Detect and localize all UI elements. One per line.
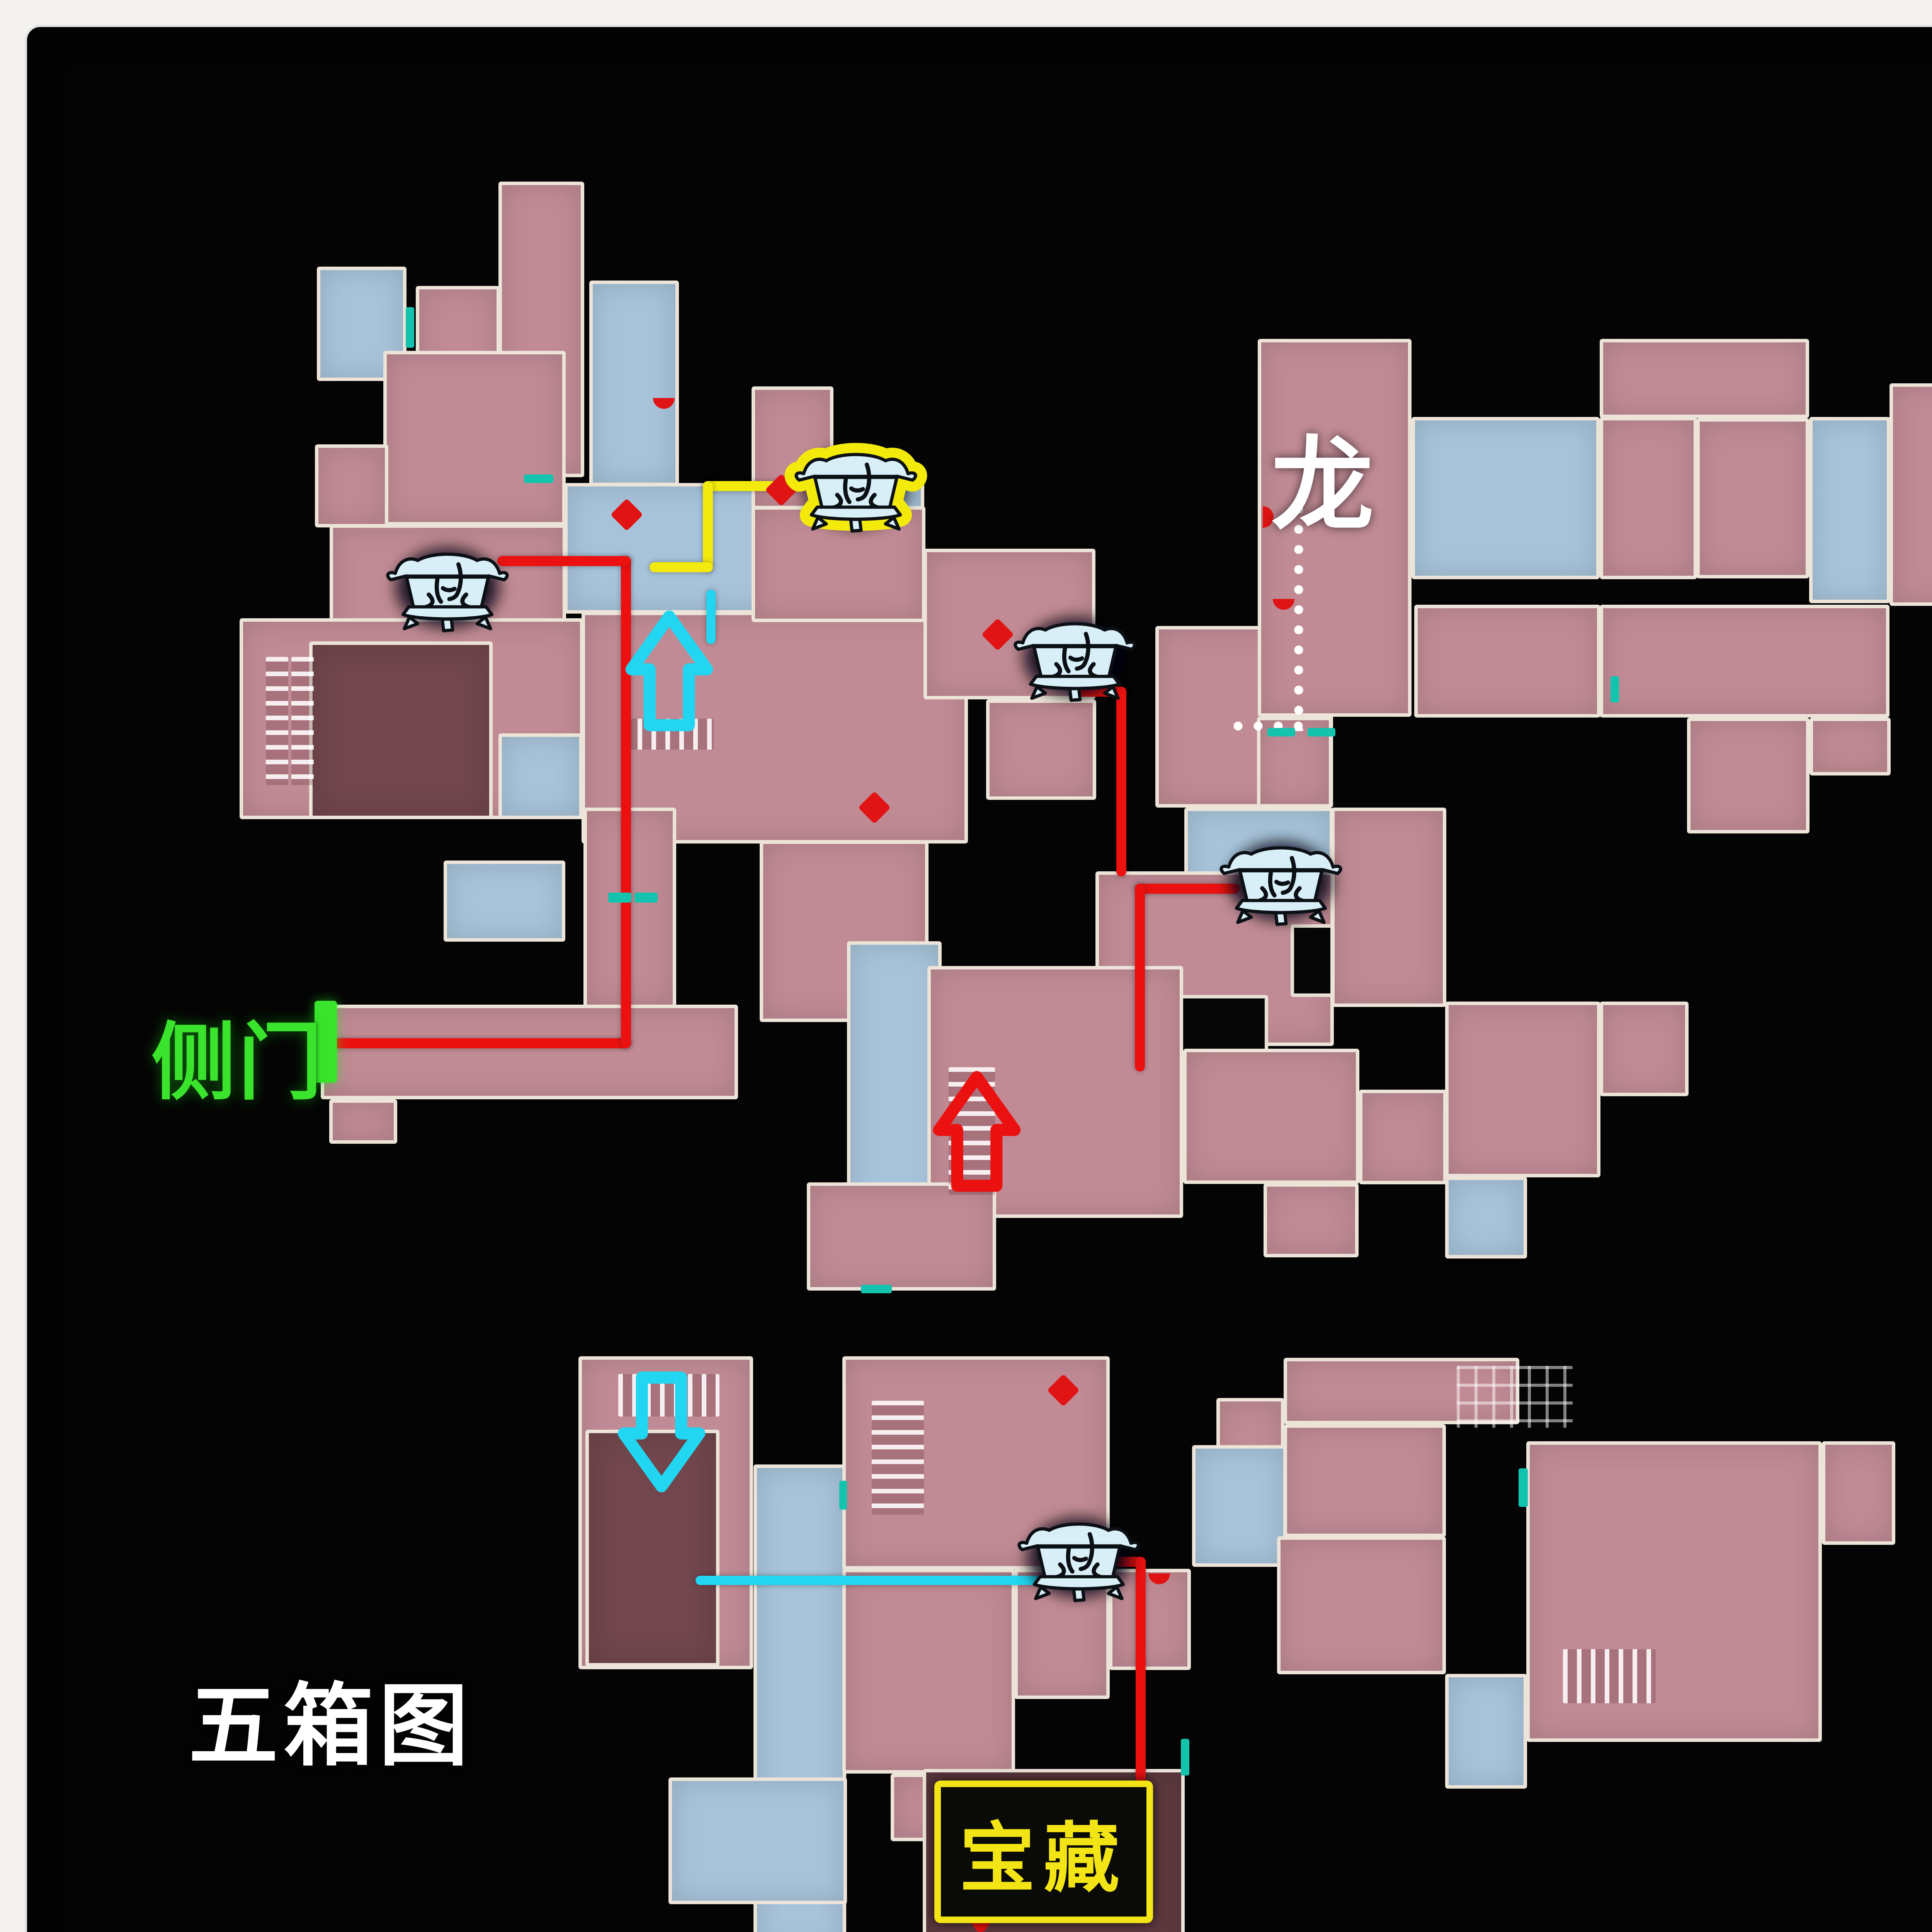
highlighted-chest-icon [788, 427, 923, 549]
teal-door-marker [524, 474, 553, 483]
teal-door-marker [861, 1285, 892, 1293]
teal-door-marker [406, 307, 414, 348]
arrow-outline [631, 617, 707, 725]
map-room [1284, 1424, 1446, 1537]
arrow-outline [939, 1077, 1014, 1186]
stairs-graphic [291, 657, 314, 785]
map-room [1600, 605, 1889, 718]
yellow-route-segment [650, 562, 713, 572]
teal-door-marker [634, 893, 658, 903]
red-route-segment [497, 556, 631, 566]
map-room [1445, 1674, 1527, 1789]
map-room [668, 1777, 847, 1904]
map-room [383, 351, 566, 526]
map-room [1412, 417, 1600, 579]
teal-door-marker [608, 893, 631, 903]
map-room [309, 641, 493, 819]
map-room [807, 1182, 996, 1291]
teal-door-marker [839, 1481, 847, 1510]
map-title-label: 五箱图 [189, 1653, 474, 1783]
dragon-label: 龙 [1271, 403, 1374, 551]
cyan-up-arrow-icon [620, 609, 718, 737]
stairs-graphic [1457, 1366, 1573, 1428]
map-room [1600, 1002, 1689, 1096]
map-room [1445, 1177, 1527, 1259]
teal-door-marker [1519, 1468, 1528, 1507]
map-room [1600, 417, 1697, 579]
map-room [1687, 718, 1810, 833]
map-room [329, 1099, 397, 1144]
red-route-segment [331, 1038, 631, 1048]
map-room [589, 281, 679, 486]
red-route-segment [1135, 884, 1145, 1071]
cyan-route-segment [696, 1576, 1045, 1585]
chest-icon [1007, 596, 1143, 718]
map-room [1889, 383, 1932, 606]
map-room [1192, 1445, 1287, 1567]
teal-door-marker [1308, 728, 1335, 736]
yellow-route-segment [703, 481, 713, 572]
teal-door-marker [1267, 728, 1295, 736]
chest-icon [1213, 820, 1349, 942]
map-canvas: 龙 侧门 五箱图 宝藏 [0, 0, 1932, 1932]
cyan-down-arrow-icon [612, 1366, 711, 1494]
map-room [1359, 1090, 1447, 1184]
treasure-label: 宝藏 [934, 1781, 1153, 1923]
map-room [1445, 1002, 1600, 1177]
teal-door-marker [1611, 676, 1619, 702]
map-room [1277, 1536, 1446, 1674]
map-room [1809, 417, 1890, 603]
map-room [1696, 418, 1809, 578]
map-room [444, 861, 565, 942]
map-room [842, 1569, 1015, 1774]
chest-icon [1011, 1496, 1146, 1619]
map-room [1264, 1183, 1359, 1257]
map-room [315, 444, 388, 527]
teal-door-marker [1181, 1739, 1189, 1776]
side-door-label: 侧门 [151, 994, 325, 1116]
arrow-outline [624, 1378, 699, 1486]
red-up-arrow-icon [928, 1070, 1026, 1198]
map-room [1183, 1049, 1359, 1184]
map-room [321, 1005, 738, 1099]
map-room [1810, 718, 1891, 776]
stairs-graphic [266, 657, 288, 785]
map-room [498, 733, 583, 819]
map-room [1822, 1441, 1895, 1545]
stairs-graphic [872, 1401, 924, 1515]
map-room [1414, 605, 1600, 718]
stairs-graphic [1563, 1649, 1656, 1703]
map-room [1600, 339, 1809, 418]
treasure-label-text: 宝藏 [959, 1816, 1128, 1901]
chest-icon [380, 526, 515, 649]
